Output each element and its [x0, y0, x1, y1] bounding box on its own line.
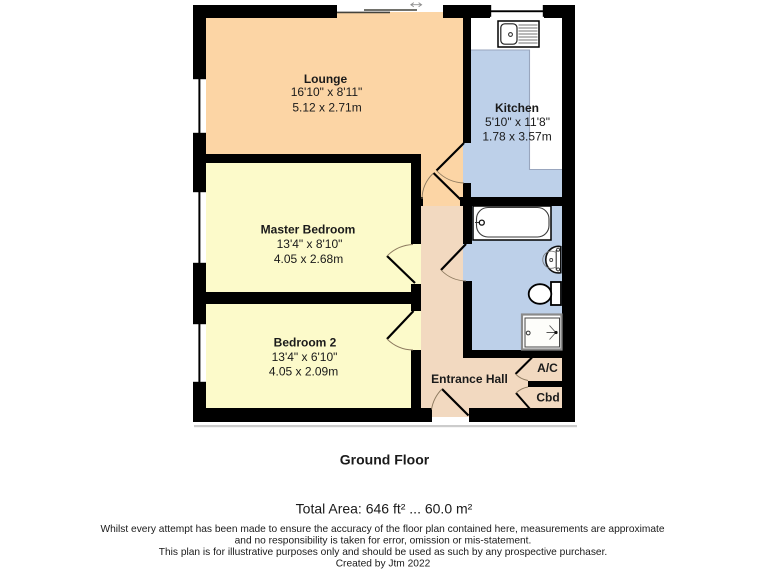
- svg-text:Cbd: Cbd: [536, 391, 559, 405]
- svg-text:13'4" x 6'10": 13'4" x 6'10": [272, 350, 338, 364]
- svg-text:5.12 x 2.71m: 5.12 x 2.71m: [292, 101, 361, 115]
- svg-text:5'10" x 11'8": 5'10" x 11'8": [485, 115, 550, 129]
- svg-text:This plan is for illustrative: This plan is for illustrative purposes o…: [159, 547, 608, 558]
- svg-text:Ground Floor: Ground Floor: [340, 452, 430, 468]
- svg-text:A/C: A/C: [537, 361, 558, 375]
- svg-text:4.05 x 2.68m: 4.05 x 2.68m: [274, 252, 343, 266]
- svg-text:13'4" x 8'10": 13'4" x 8'10": [277, 237, 343, 251]
- svg-text:Whilst every attempt has been: Whilst every attempt has been made to en…: [100, 524, 664, 535]
- svg-text:Entrance Hall: Entrance Hall: [431, 372, 508, 386]
- svg-text:Lounge: Lounge: [304, 72, 348, 86]
- svg-text:1.78 x 3.57m: 1.78 x 3.57m: [482, 130, 551, 144]
- svg-text:16'10" x 8'11": 16'10" x 8'11": [291, 85, 363, 99]
- svg-text:Total Area: 646 ft² ... 60.0 m: Total Area: 646 ft² ... 60.0 m²: [296, 501, 473, 517]
- svg-text:Bedroom 2: Bedroom 2: [274, 336, 337, 350]
- svg-text:Created by Jtm 2022: Created by Jtm 2022: [336, 559, 431, 570]
- svg-text:Kitchen: Kitchen: [495, 101, 539, 115]
- svg-text:4.05 x 2.09m: 4.05 x 2.09m: [269, 365, 338, 379]
- svg-text:and no responsibility is taken: and no responsibility is taken for error…: [235, 536, 532, 547]
- svg-text:Master Bedroom: Master Bedroom: [261, 223, 356, 237]
